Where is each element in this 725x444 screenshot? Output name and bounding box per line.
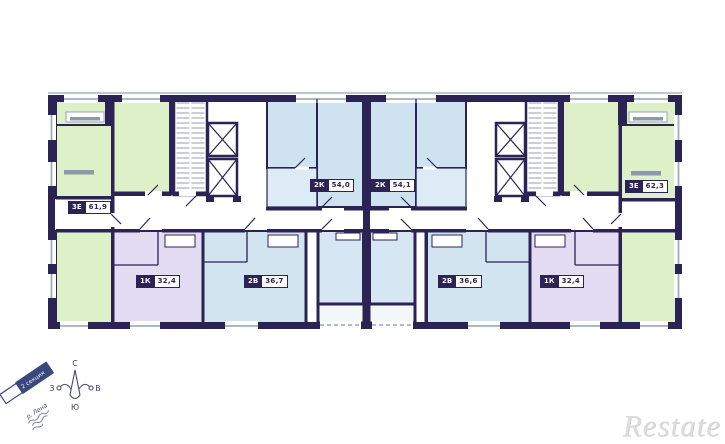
unit-area: 36,6 [456, 275, 481, 288]
unit-label-2v-left: 2В 36,7 [244, 275, 288, 288]
elevator-shafts-left [208, 123, 237, 196]
river-label: р. Лена [24, 402, 56, 431]
compass: С Ю З В [50, 359, 101, 412]
river-name: р. Лена [24, 402, 49, 421]
unit-type: 3Е [625, 180, 643, 193]
elevator-shafts-right [496, 123, 525, 196]
unit-type: 1К [540, 275, 559, 288]
unit-type: 2В [438, 275, 456, 288]
unit-area: 54,1 [390, 179, 415, 192]
compass-west-label: З [50, 384, 55, 393]
unit-label-2v-right: 2В 36,6 [438, 275, 482, 288]
unit-type: 1К [136, 275, 155, 288]
unit-type: 2К [371, 179, 390, 192]
unit-label-1k-left: 1К 32,4 [136, 275, 180, 288]
compass-south-label: Ю [71, 403, 79, 412]
unit-label-3e-left: 3Е 61,9 [68, 201, 111, 214]
floor-plan: С Ю З В 2 секция р. Лена [0, 0, 725, 444]
unit-area: 32,4 [559, 275, 584, 288]
unit-area: 62,3 [643, 180, 668, 193]
staircase-left [174, 99, 207, 195]
unit-area: 32,4 [155, 275, 180, 288]
unit-area: 36,7 [262, 275, 287, 288]
unit-area: 61,9 [86, 201, 111, 214]
unit-label-2k-left: 2К 54,0 [310, 179, 354, 192]
unit-area: 54,0 [329, 179, 354, 192]
compass-north-label: С [72, 359, 77, 368]
unit-label-3e-right: 3Е 62,3 [625, 180, 668, 193]
unit-label-1k-right: 1К 32,4 [540, 275, 584, 288]
watermark-restate: Restate [623, 408, 721, 444]
unit-type: 2В [244, 275, 262, 288]
compass-east-label: В [95, 384, 100, 393]
unit-type: 2К [310, 179, 329, 192]
unit-type: 3Е [68, 201, 86, 214]
section-ribbon: 2 секция [0, 361, 54, 404]
unit-label-2k-right: 2К 54,1 [371, 179, 415, 192]
staircase-right [526, 99, 559, 195]
floorplan-page: С Ю З В 2 секция р. Лена 3Е 61,9 2К 54,0… [0, 0, 725, 444]
